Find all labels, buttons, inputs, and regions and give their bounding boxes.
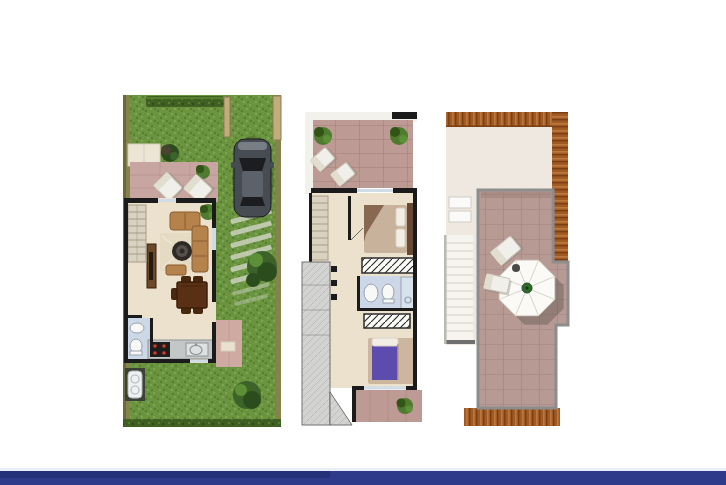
terrace-plant [390, 127, 408, 145]
ac-unit [125, 368, 145, 401]
entry-bush [161, 144, 179, 162]
floor-plan-image [0, 0, 726, 485]
fence-right [275, 95, 281, 419]
coffee-table [172, 241, 192, 261]
wardrobe [364, 314, 410, 328]
bedroom2-bed [368, 338, 414, 384]
ottoman [166, 265, 186, 275]
roof-solarium-plan [444, 112, 568, 426]
roof-tiles-top [446, 112, 568, 127]
ground-floor-plan [123, 95, 281, 427]
footer-brand-bar [0, 471, 726, 485]
window [190, 360, 208, 363]
stairs [311, 196, 328, 260]
kitchen-counter [148, 340, 214, 359]
terrace-plant [314, 127, 332, 145]
parked-car [231, 136, 274, 220]
house-ground-floor [124, 198, 216, 363]
roof-tiles-bottom [464, 408, 560, 426]
window [357, 189, 393, 192]
washbasin [130, 323, 144, 333]
wall [392, 112, 417, 119]
fence-post [273, 96, 281, 140]
bathroom [360, 276, 415, 309]
floor-plans-graphic [0, 0, 726, 468]
rear-terrace [352, 388, 422, 422]
kitchen-sink [186, 343, 208, 356]
washbasin [364, 284, 378, 302]
footer-brand-bar-accent [0, 471, 330, 478]
shower [401, 277, 415, 309]
stairs [128, 205, 146, 262]
door-mat [221, 342, 235, 351]
wardrobe [362, 258, 414, 273]
hedge-bottom [123, 419, 281, 427]
side-table [512, 264, 520, 272]
window [212, 228, 216, 250]
garden-bush [233, 381, 261, 409]
toilet [382, 284, 394, 300]
side-porch [216, 320, 242, 367]
tv-unit [147, 244, 156, 288]
first-floor-plan [302, 112, 422, 425]
stove [150, 342, 170, 357]
patio-door [158, 199, 176, 202]
fence-post [224, 97, 230, 137]
window [364, 387, 406, 390]
bedroom1-bed [364, 203, 413, 255]
stairwell-skylight [444, 197, 475, 344]
